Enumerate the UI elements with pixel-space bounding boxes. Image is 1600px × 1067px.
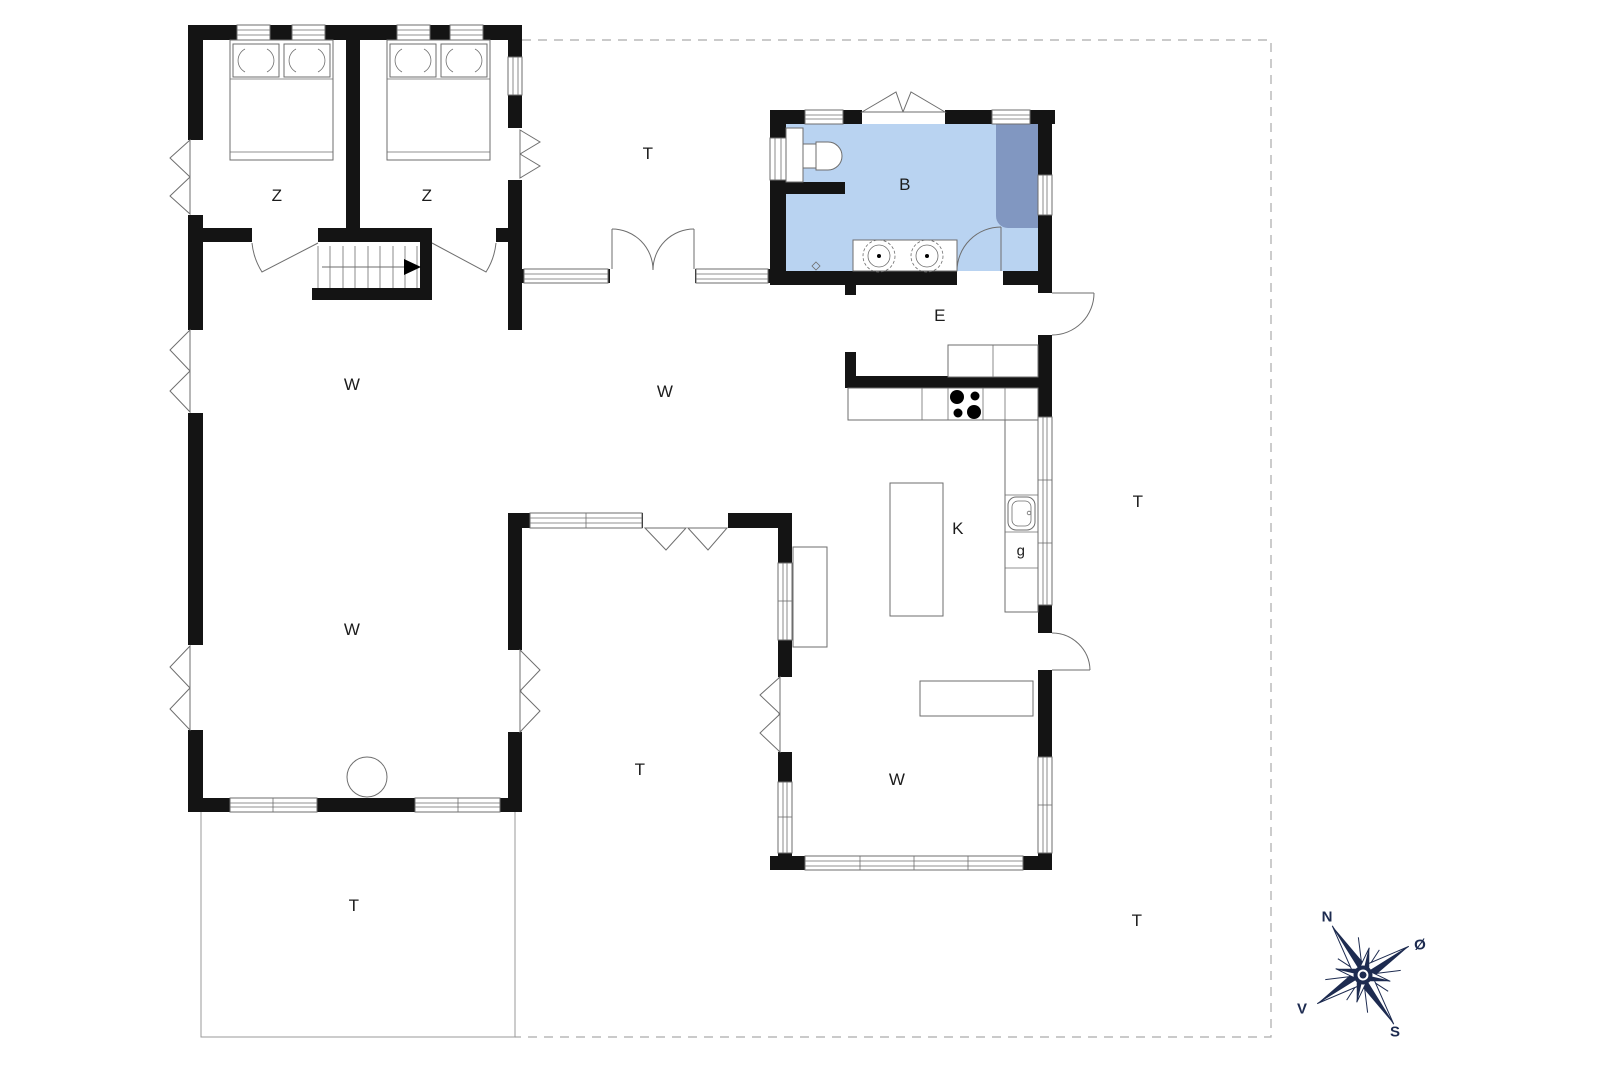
floorplan-page: { "colors": { "wall": "#141414", "line":… — [0, 0, 1600, 1067]
kitchen-sink-icon — [1008, 497, 1035, 530]
stairs-direction-arrow — [404, 259, 421, 275]
terrace-outline — [201, 812, 515, 1037]
compass-rose-icon — [1286, 897, 1439, 1053]
bathroom-vanity-sinks — [853, 240, 957, 272]
staircase-icon — [318, 246, 421, 288]
terrace-label-se: T — [1132, 911, 1143, 931]
room-label-bedroom-1: Z — [272, 186, 283, 206]
room-label-living-sw: W — [344, 620, 360, 640]
room-label-kitchen: K — [952, 519, 964, 539]
terrace-label-sw: T — [349, 896, 360, 916]
compass-label-west: V — [1297, 1001, 1307, 1018]
shower-mat-icon — [996, 124, 1038, 228]
cabinet — [793, 547, 827, 647]
room-label-living-mid: W — [657, 382, 673, 402]
double-bed-icon — [230, 40, 333, 160]
double-bed-icon — [387, 40, 490, 160]
opening-face-lines — [190, 130, 779, 752]
compass-label-south: S — [1390, 1024, 1400, 1041]
kitchen-island — [890, 483, 943, 616]
room-label-living-se: W — [889, 770, 905, 790]
room-label-entrance: E — [934, 306, 946, 326]
room-label-bedroom-2: Z — [422, 186, 433, 206]
sideboard — [920, 681, 1033, 716]
label-appliance-g: g — [1017, 543, 1026, 560]
compass-label-north: N — [1322, 909, 1333, 926]
terrace-label-east: T — [1133, 492, 1144, 512]
terrace-label-north: T — [643, 144, 654, 164]
terrace-label-mid: T — [635, 760, 646, 780]
wood-stove-icon — [347, 757, 387, 797]
room-label-bathroom: B — [899, 175, 911, 195]
floorplan-drawing — [0, 0, 1600, 1067]
room-label-living-nw: W — [344, 375, 360, 395]
compass-label-east: Ø — [1414, 937, 1426, 954]
